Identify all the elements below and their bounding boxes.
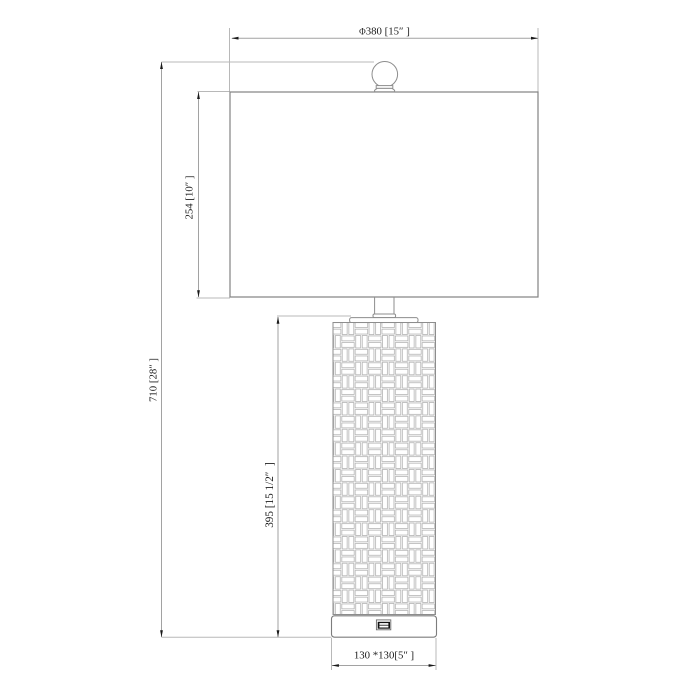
svg-text:710 [28″ ]: 710 [28″ ] xyxy=(148,358,160,402)
svg-text:254 [10″ ]: 254 [10″ ] xyxy=(184,175,196,219)
svg-text:130 *130[5″ ]: 130 *130[5″ ] xyxy=(354,650,414,662)
svg-text:Φ380 [15″ ]: Φ380 [15″ ] xyxy=(359,26,410,38)
svg-text:395 [15 1/2″ ]: 395 [15 1/2″ ] xyxy=(264,462,276,528)
